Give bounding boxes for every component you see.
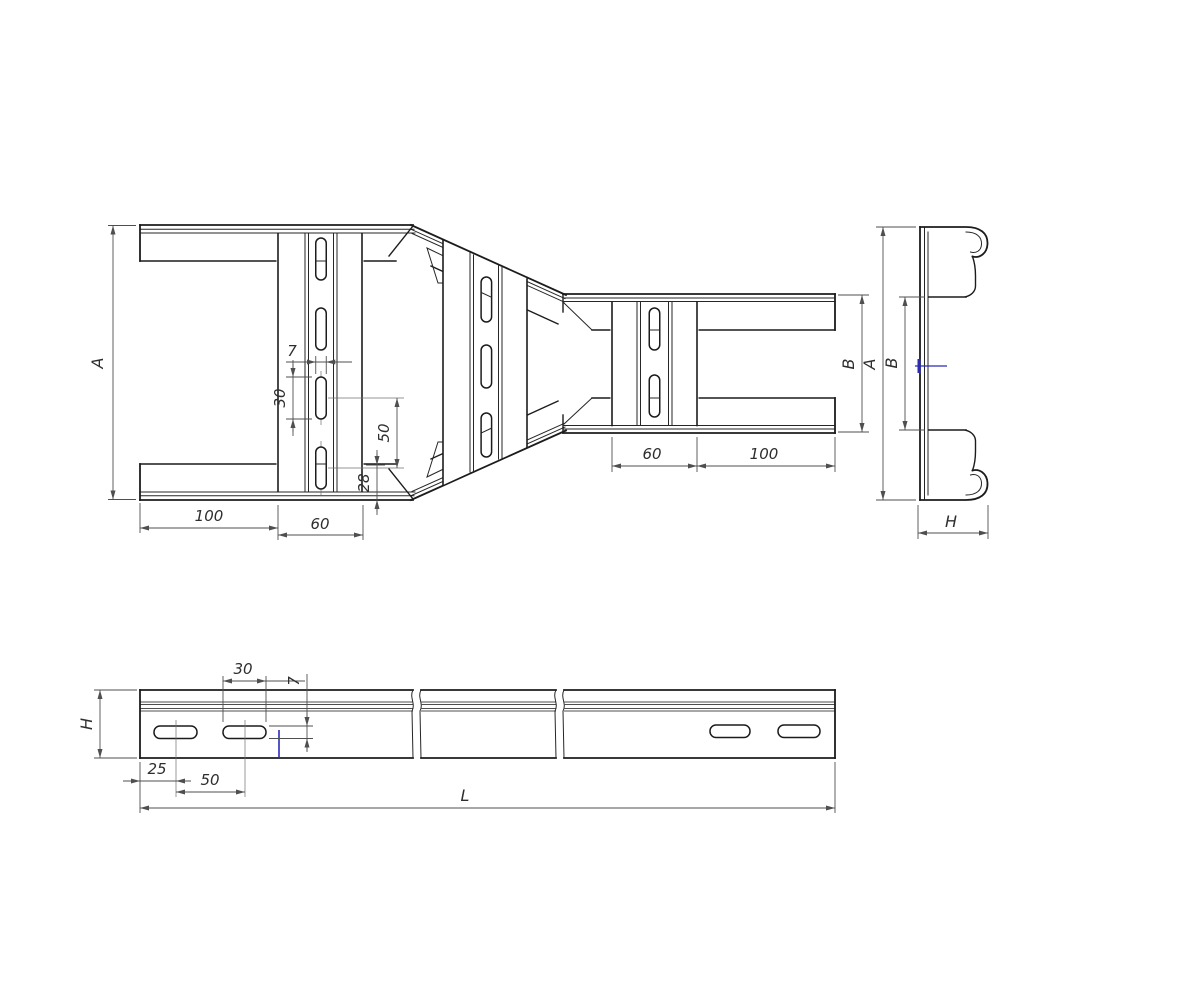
dim-label-28: 28 [355,473,373,492]
rung-middle [443,240,527,485]
rail-segment-right [563,690,835,758]
rail-segment-middle [420,690,557,758]
dim-label-7: 7 [287,342,297,360]
dim-label-H-side: H [77,718,96,730]
side-view: H 30 7 25 50 [77,660,835,813]
slot [481,413,492,457]
slot [316,447,327,489]
dim-label-50: 50 [375,423,393,442]
dim-label-25: 25 [147,760,166,778]
rung-left [277,234,364,496]
dim-label-30-side: 30 [233,660,252,678]
dim-label-30: 30 [271,388,289,407]
weld-mark-blue [915,359,947,373]
end-view-profile [920,227,988,500]
slot [481,345,492,388]
dim-label-H-end: H [945,512,957,531]
slot [778,725,820,738]
dim-label-100-left: 100 [195,507,224,525]
dim-label-100-right: 100 [750,445,779,463]
dim-label-A-end: A [860,359,879,371]
slot [316,377,327,419]
top-view: A 100 60 7 30 50 [88,225,869,540]
slot [154,726,197,739]
dim-label-A-left: A [88,358,107,370]
narrow-section-rails [563,294,835,433]
dim-label-60-right: 60 [642,445,661,463]
slot [710,725,750,738]
slot [481,277,492,322]
drawing-sheet: A 100 60 7 30 50 [0,0,1200,1000]
dim-label-B-top: B [839,359,858,370]
slot [649,375,660,417]
slot [649,308,660,350]
end-view: A B H [860,227,988,539]
technical-drawing: A 100 60 7 30 50 [0,0,1200,1000]
slot [316,308,327,350]
dim-label-60-left: 60 [310,515,329,533]
rail-segment-left [140,690,413,758]
rung-right [611,302,699,426]
dim-label-7-side: 7 [285,676,303,686]
slot [316,238,327,280]
dim-label-50-side: 50 [200,771,219,789]
dim-label-B-end: B [882,358,901,369]
dim-label-L: L [461,786,470,805]
slot [223,726,266,739]
